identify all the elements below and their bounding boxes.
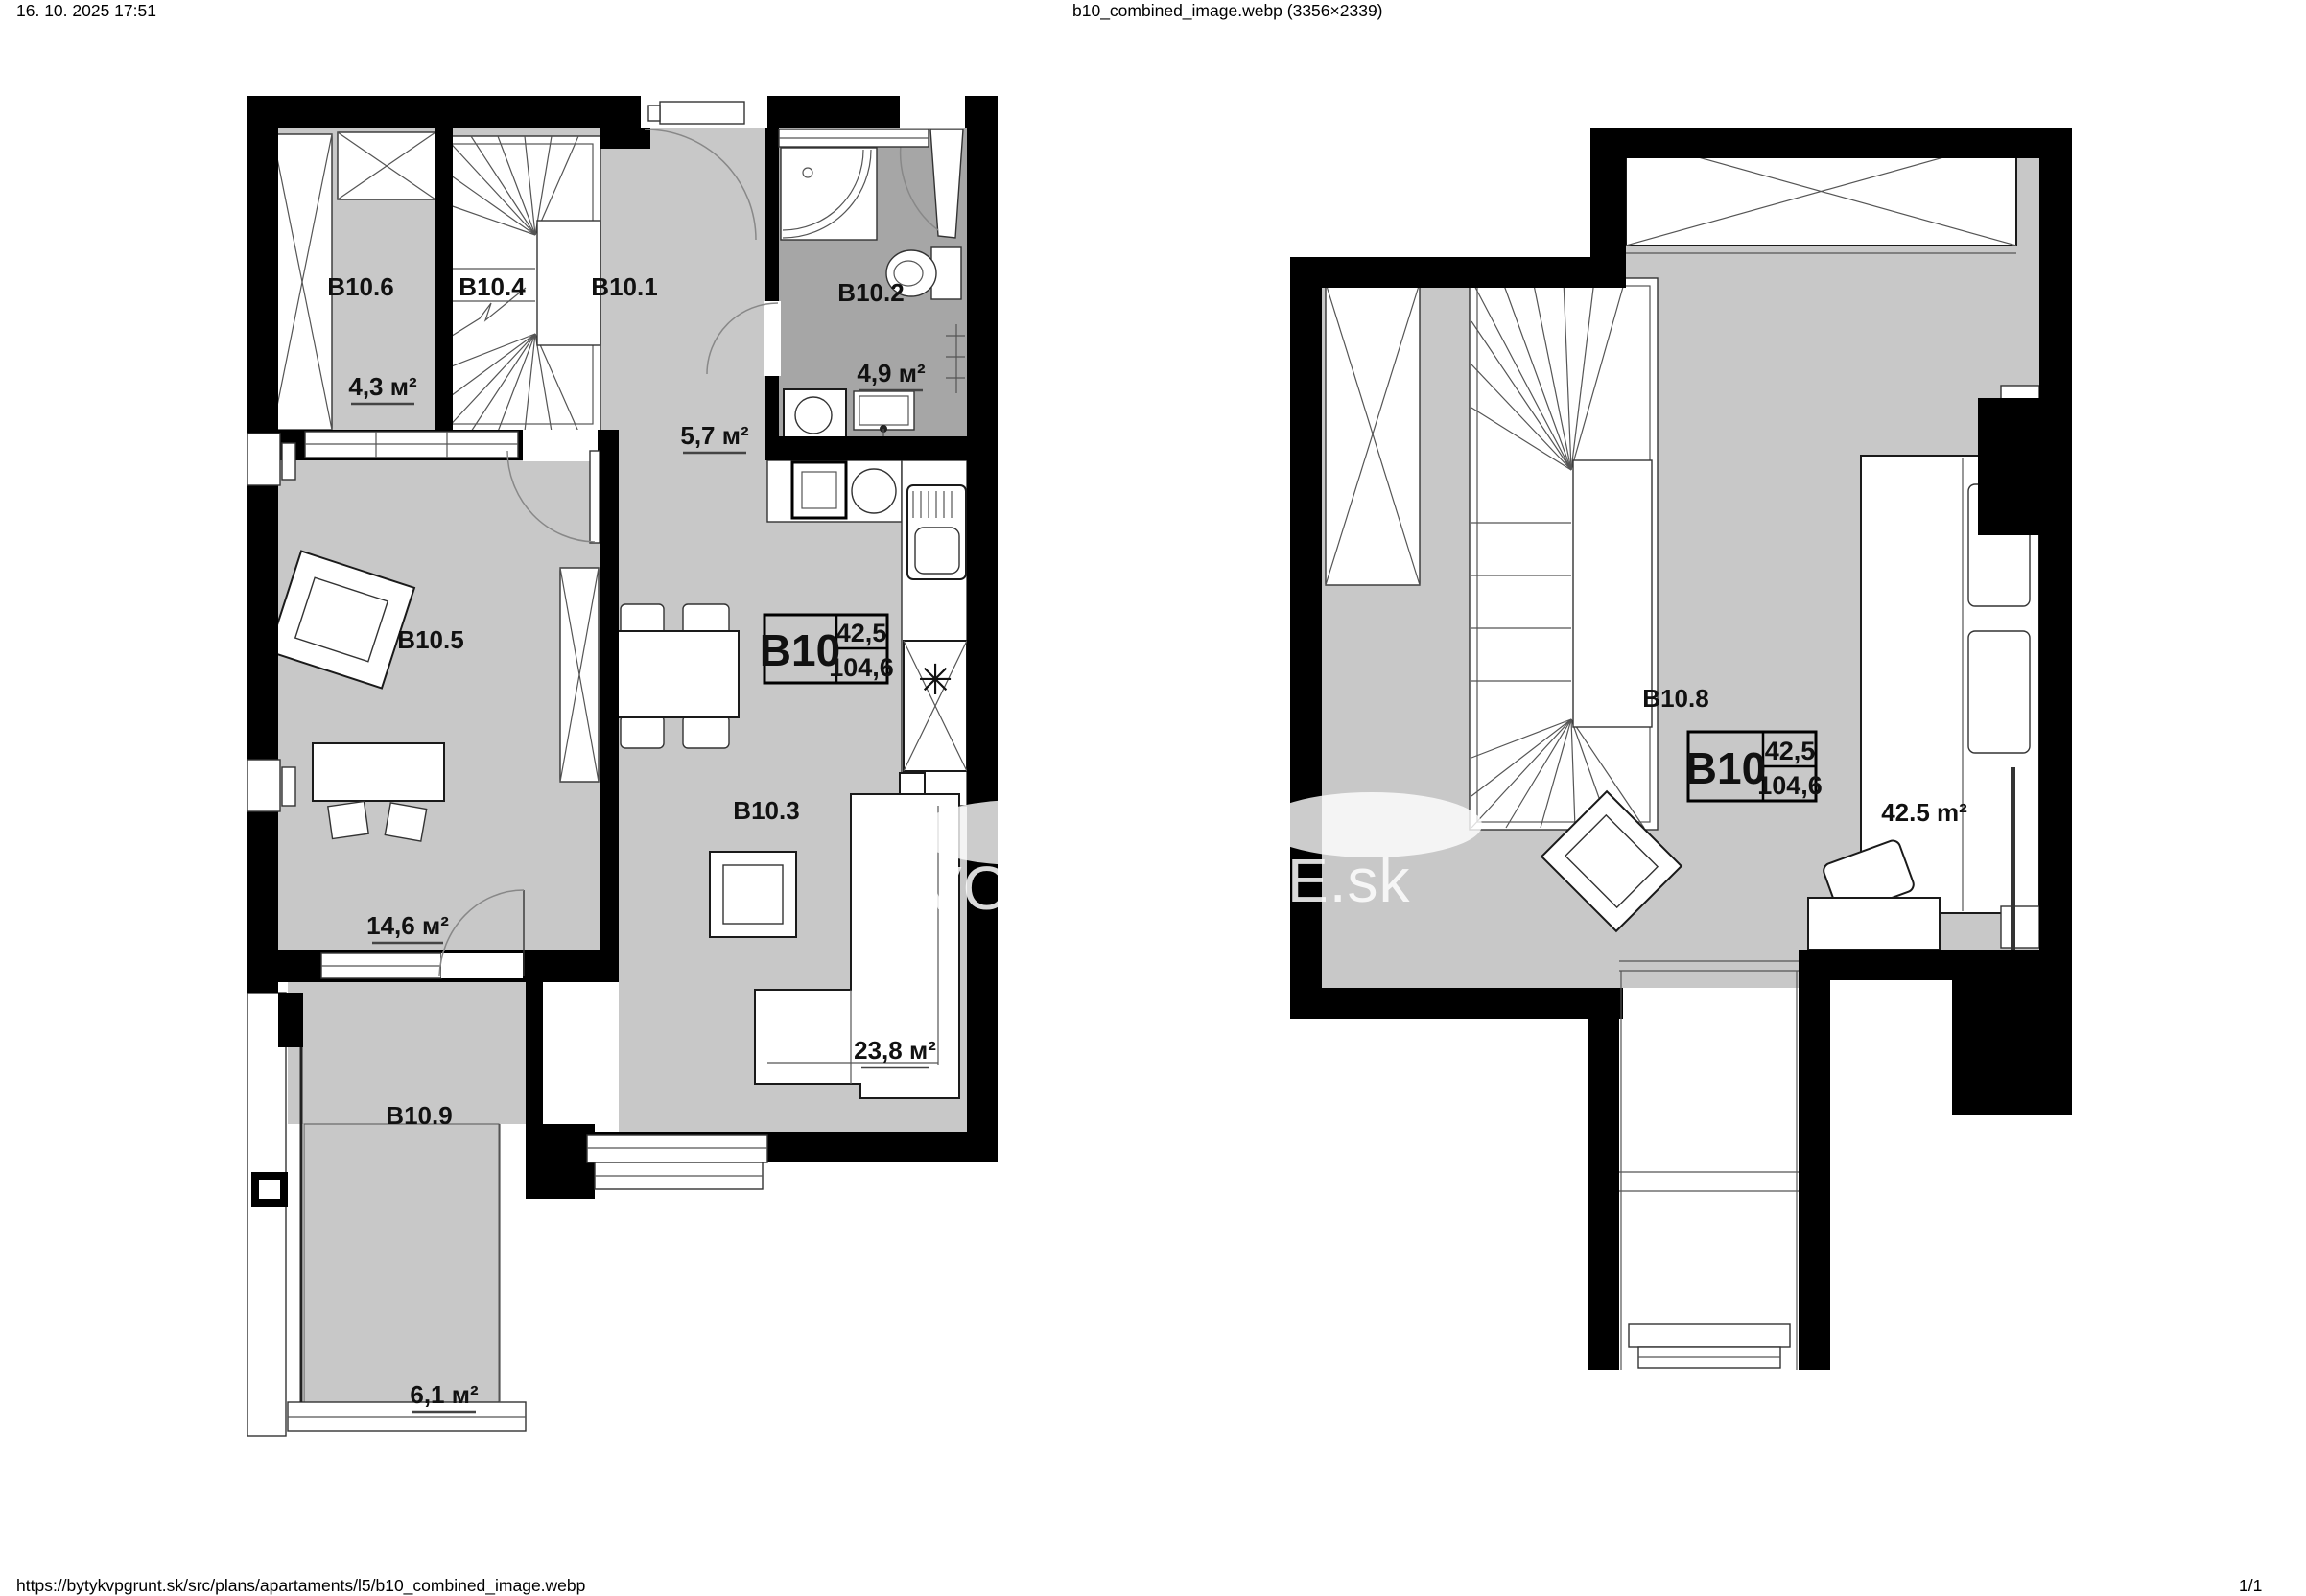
unit-info-box-ground: B10 42,5 104,6 [760, 615, 894, 683]
unit-area-total: 104,6 [1757, 771, 1823, 800]
watermark-fragment-right: E.sk [1287, 846, 1410, 915]
room-label-b10-4: B10.4 [459, 272, 526, 301]
coffee-table-icon [710, 852, 796, 937]
wardrobe-icon-b10-8 [1326, 283, 1420, 585]
room-label-b10-5: B10.5 [397, 625, 463, 654]
upper-floor-plan: B10.8 42.5 m² B10 42,5 104,6 [1290, 128, 2072, 1370]
room-area-b10-9: 6,1 м² [410, 1380, 479, 1409]
floorplan-image: ✳ [0, 0, 2306, 1596]
room-label-b10-6: B10.6 [327, 272, 393, 301]
room-label-b10-9: B10.9 [386, 1101, 452, 1130]
room-area-b10-3: 23,8 м² [854, 1036, 936, 1065]
wardrobe-icon-b10-5 [560, 568, 599, 782]
fridge-asterisk: ✳ [918, 657, 953, 704]
window-b10-3-bottom-icon [587, 1135, 767, 1189]
unit-area-floor: 42,5 [836, 619, 887, 647]
unit-area-floor: 42,5 [1765, 737, 1816, 765]
unit-code: B10 [1685, 743, 1766, 793]
fridge-icon: ✳ [904, 641, 967, 771]
room-area-b10-2: 4,9 м² [857, 359, 926, 387]
watermark: VO E.sk [916, 792, 1482, 923]
staircase-icon-upper [1470, 278, 1658, 830]
watermark-fragment-left: VO [921, 854, 1011, 923]
shower-icon [781, 148, 877, 240]
print-preview-page: 16. 10. 2025 17:51 b10_combined_image.we… [0, 0, 2306, 1596]
bathroom-window-icon [779, 129, 929, 147]
terrace-upper-icon [1619, 961, 1799, 1370]
room-area-b10-6: 4,3 м² [348, 372, 417, 401]
unit-area-total: 104,6 [829, 653, 894, 682]
room-area-b10-8: 42.5 m² [1881, 798, 1967, 827]
wall-shelf-line [2011, 767, 2015, 959]
ground-floor-plan: ✳ [247, 96, 998, 1436]
room-label-b10-3: B10.3 [733, 796, 799, 825]
floor-room-b10-5 [278, 460, 600, 950]
desk-icon-b10-8 [1808, 898, 1940, 950]
room-label-b10-2: B10.2 [837, 278, 904, 307]
washing-machine-icon [784, 389, 846, 441]
room-label-b10-1: B10.1 [591, 272, 657, 301]
sliding-door-b10-6-icon [305, 432, 518, 458]
floor-terrace-b10-9 [247, 982, 526, 1436]
room-area-b10-1: 5,7 м² [680, 421, 749, 450]
room-area-b10-5: 14,6 м² [366, 911, 449, 940]
room-label-b10-8: B10.8 [1642, 684, 1708, 713]
